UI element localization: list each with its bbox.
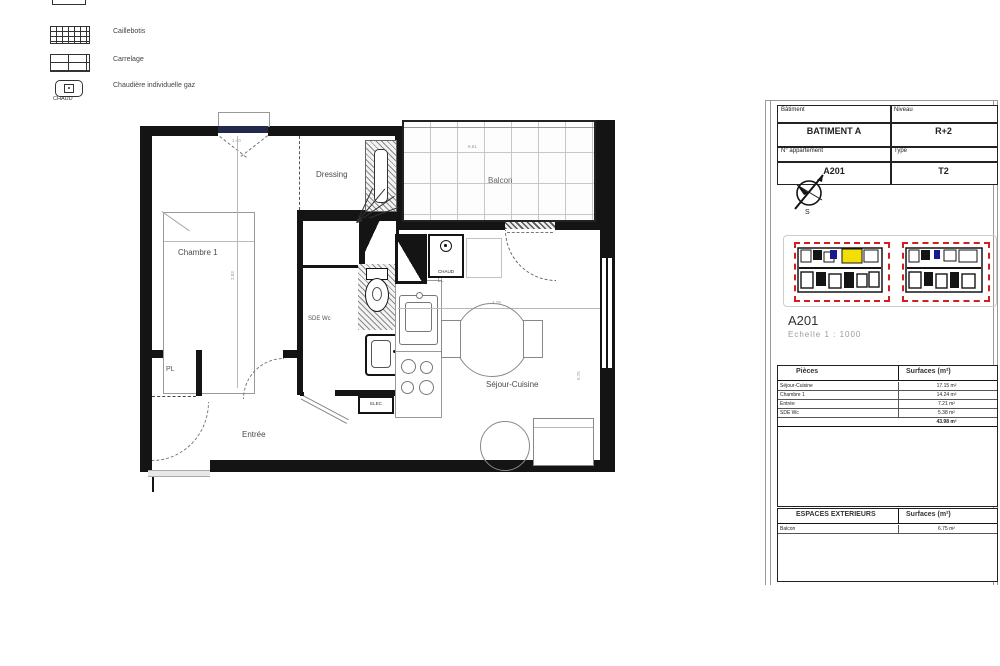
- window-right-frame: [606, 258, 608, 368]
- room-label-sde: SDE Wc: [308, 316, 331, 322]
- kitchen-sink: [399, 295, 438, 345]
- title-block: Bâtiment Niveau BATIMENT A R+2 N° appart…: [760, 95, 1000, 595]
- boiler-symbol-text: CHAUD: [53, 96, 73, 102]
- boiler-symbol-inner: [64, 84, 74, 93]
- hob-burner: [401, 381, 414, 394]
- exterior-row: Balcon 6.75 m²: [778, 525, 997, 534]
- niveau-value: R+2: [891, 122, 996, 146]
- surfaces-total-value: 43.98 m²: [898, 418, 995, 426]
- side-table: [480, 421, 530, 471]
- kitchen-counter: [395, 280, 442, 418]
- exterior-header-row: ESPACES EXTERIEURS Surfaces (m²): [778, 509, 997, 524]
- exterior-row-piece: Balcon: [780, 525, 795, 533]
- dim-chambre: 2.83: [230, 271, 235, 280]
- kitchen-divider: [396, 351, 441, 352]
- sde-door-leaf: [301, 395, 349, 424]
- surfaces-row-value: 5.38 m²: [898, 409, 995, 417]
- key-plan-left: [794, 242, 890, 302]
- type-label: Type: [891, 147, 996, 161]
- boiler-symbol-icon: [55, 80, 83, 97]
- surfaces-vline: [898, 409, 899, 417]
- chair: [523, 320, 543, 358]
- legend: ELEC Radiateur électrique Caillebotis Ca…: [50, 0, 310, 110]
- dining-table: [455, 303, 529, 377]
- radiator-sde: ELEC: [358, 396, 394, 414]
- boiler-dot: [444, 244, 447, 247]
- floor-plan: 1.40 Balcon 9.61 Chambre 1 2.83 Dressing: [140, 118, 620, 494]
- sofa-line: [534, 427, 593, 428]
- boiler: CHAUD: [428, 234, 464, 278]
- washbasin: [365, 334, 399, 376]
- window-top-sill: [218, 112, 270, 127]
- surfaces-header-vline: [898, 366, 899, 380]
- tall-unit: [395, 234, 427, 284]
- fridge: [466, 238, 502, 278]
- bed-fold-line: [164, 241, 254, 242]
- exterior-header-label: ESPACES EXTERIEURS: [796, 511, 876, 518]
- compass-icon: S: [785, 167, 835, 222]
- apartment-code: A201: [788, 313, 818, 328]
- legend-label-chaudiere: Chaudière individuelle gaz: [113, 82, 195, 89]
- scale-label: Echelle 1 : 1000: [788, 330, 861, 339]
- bed: [163, 212, 255, 394]
- balcony-door-line: [507, 232, 553, 233]
- frame-line: [765, 100, 766, 585]
- sde-cabinet: [362, 218, 399, 268]
- surfaces-row-value: 14.24 m²: [898, 391, 995, 399]
- niveau-label: Niveau: [891, 106, 996, 122]
- washbasin-bowl: [371, 340, 391, 368]
- room-label-dressing: Dressing: [316, 170, 348, 179]
- exterior-table: ESPACES EXTERIEURS Surfaces (m²) Balcon …: [777, 508, 998, 582]
- frame-line: [770, 100, 771, 585]
- dim-sejour-height: 5.75: [576, 371, 581, 380]
- type-value: T2: [891, 162, 996, 184]
- surfaces-row-piece: Entrée: [780, 400, 795, 408]
- balcony-area: [402, 120, 596, 222]
- kitchen-tap: [416, 292, 423, 299]
- surfaces-header-pieces: Pièces: [796, 368, 818, 375]
- surfaces-row-piece: Séjour-Cuisine: [780, 382, 813, 390]
- boiler-symbol-dot: [68, 87, 70, 89]
- balcony-door-arc: [505, 230, 556, 281]
- dim-balcon: 9.61: [468, 144, 477, 149]
- surfaces-row: SDE Wc 5.38 m²: [778, 409, 997, 418]
- surfaces-header-row: Pièces Surfaces (m²): [778, 366, 997, 381]
- wall: [268, 126, 405, 136]
- key-plan-right: [902, 242, 990, 302]
- radiator-sde-text: ELEC: [360, 398, 392, 410]
- shower: [300, 218, 362, 268]
- wall: [196, 350, 202, 396]
- window-top-blind: [218, 126, 268, 133]
- surfaces-table: Pièces Surfaces (m²) Séjour-Cuisine 17.1…: [777, 365, 998, 507]
- surfaces-total-row: 43.98 m²: [778, 418, 997, 427]
- exterior-header-surface: Surfaces (m²): [906, 511, 951, 518]
- room-label-placard: PL: [166, 366, 175, 373]
- surfaces-vline: [898, 400, 899, 408]
- entry-threshold: [148, 470, 210, 477]
- balcony-railing: [404, 127, 594, 128]
- construction-line: [237, 136, 238, 388]
- frame-line: [765, 100, 998, 101]
- entry-door-arc: [152, 402, 209, 461]
- chair: [441, 320, 461, 358]
- dressing-open-boundary: [299, 136, 300, 210]
- placard-front: [152, 396, 196, 397]
- hob-burner: [401, 359, 416, 374]
- surfaces-row-value: 17.15 m²: [898, 382, 995, 390]
- surfaces-header-surface: Surfaces (m²): [906, 368, 951, 375]
- exterior-row-value: 6.75 m²: [898, 525, 995, 533]
- caillebotis-symbol-icon: [50, 26, 90, 44]
- surfaces-vline: [898, 391, 899, 399]
- hob-burner: [419, 380, 434, 395]
- hob-burner: [420, 361, 433, 374]
- radiator-symbol-icon: ELEC: [52, 0, 86, 5]
- wardrobe: [365, 140, 397, 212]
- kitchen-sink-bowl: [405, 302, 432, 332]
- batiment-value: BATIMENT A: [778, 122, 890, 146]
- surfaces-row-value: 7.21 m²: [898, 400, 995, 408]
- compass-south-label: S: [805, 209, 810, 216]
- floorplan-sheet: ELEC Radiateur électrique Caillebotis Ca…: [0, 0, 1000, 666]
- wardrobe-rod: [374, 149, 388, 203]
- legend-label-caillebotis: Caillebotis: [113, 28, 145, 35]
- exterior-header-vline: [898, 509, 899, 523]
- sofa: [533, 418, 594, 466]
- surfaces-row: Entrée 7.21 m²: [778, 400, 997, 409]
- wall: [140, 126, 152, 472]
- window-swing-line: [241, 135, 268, 157]
- key-plan-frame: [783, 235, 997, 307]
- surfaces-row: Séjour-Cuisine 17.15 m²: [778, 382, 997, 391]
- boiler-text: CHAUD: [430, 269, 462, 274]
- wc-bowl: [365, 278, 389, 312]
- room-label-chambre: Chambre 1: [178, 248, 218, 257]
- washer-text: LL: [438, 278, 444, 284]
- room-label-sejour: Séjour-Cuisine: [486, 380, 538, 389]
- legend-label-carrelage: Carrelage: [113, 56, 144, 63]
- batiment-label: Bâtiment: [778, 106, 890, 122]
- surfaces-row-piece: SDE Wc: [780, 409, 799, 417]
- room-label-balcon: Balcon: [488, 176, 512, 185]
- appartement-label: N° appartement: [778, 147, 890, 161]
- surfaces-row-piece: Chambre 1: [780, 391, 805, 399]
- exterior-vline: [898, 525, 899, 533]
- wall: [283, 350, 297, 358]
- wc-bowl-inner: [372, 287, 382, 301]
- sde-door-hinge: [300, 392, 304, 396]
- surfaces-vline: [898, 382, 899, 390]
- room-label-entree: Entrée: [242, 430, 266, 439]
- bed-corner-line: [161, 211, 189, 231]
- surfaces-row: Chambre 1 14.24 m²: [778, 391, 997, 400]
- carrelage-symbol-icon: [50, 54, 90, 72]
